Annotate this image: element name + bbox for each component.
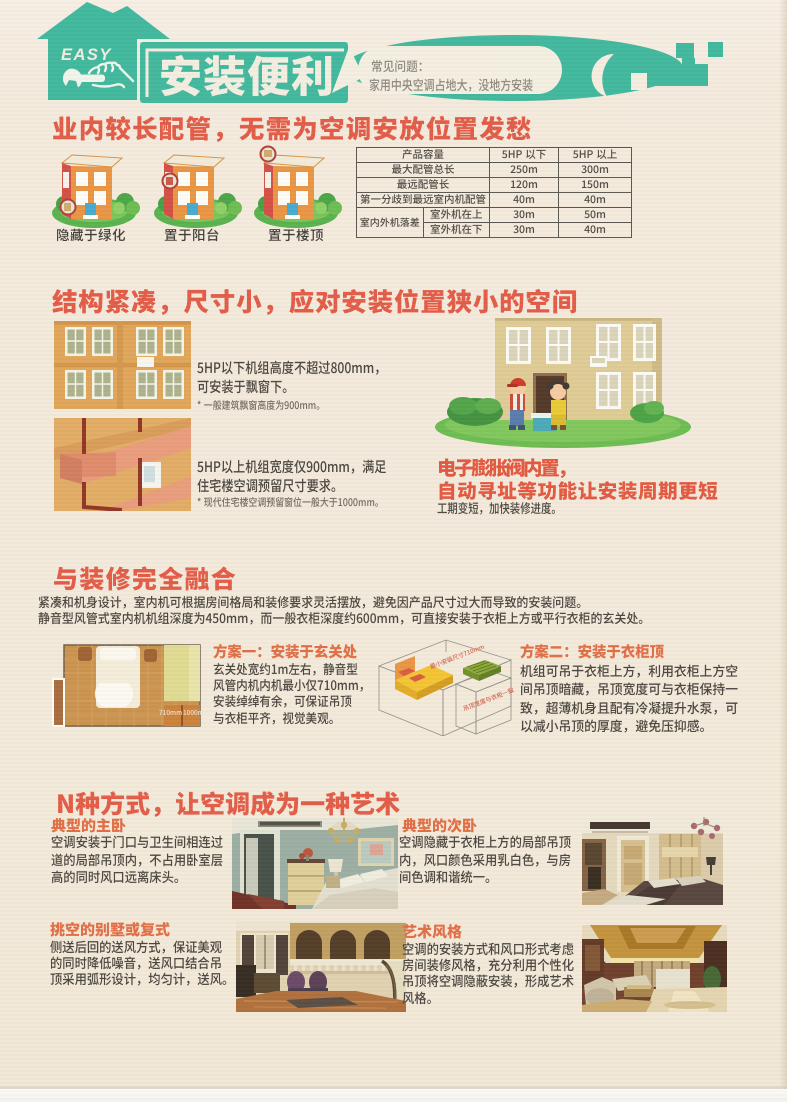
svg-text:EASY: EASY xyxy=(61,46,112,64)
svg-text:安装便利: 安装便利 xyxy=(159,43,335,105)
